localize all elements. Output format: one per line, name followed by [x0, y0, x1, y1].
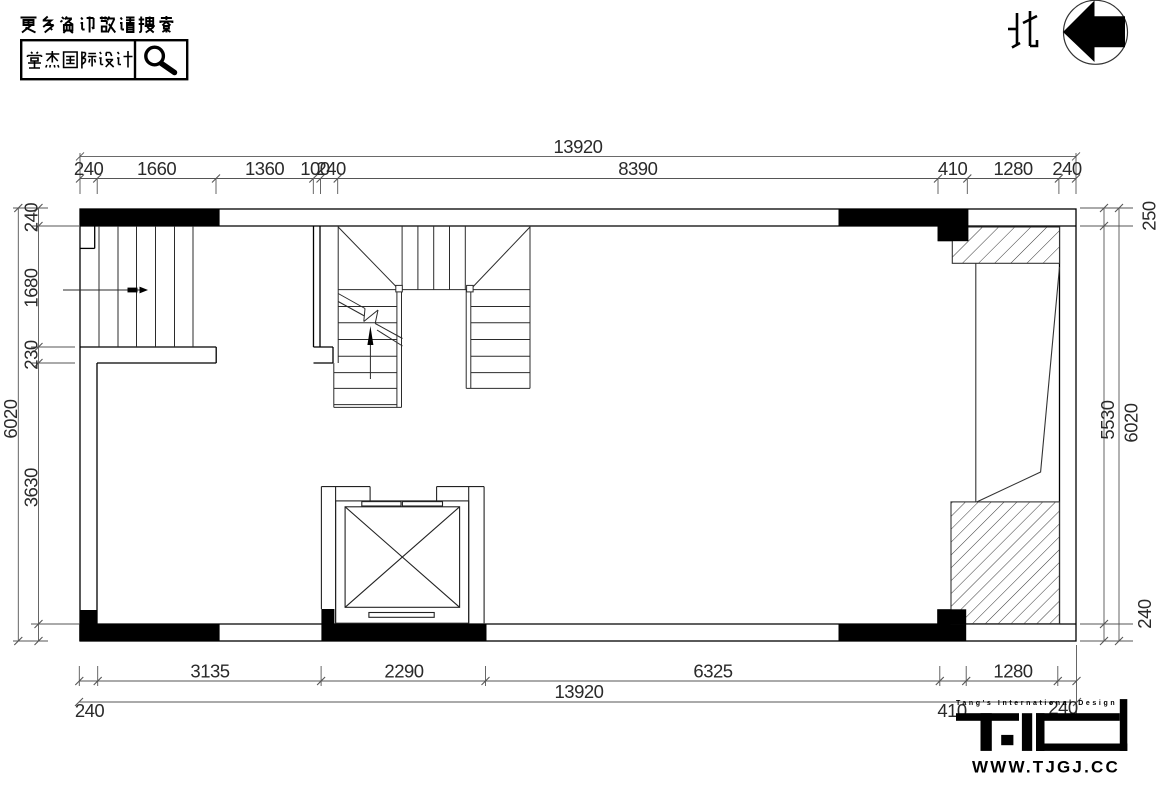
- svg-text:410: 410: [938, 158, 968, 179]
- svg-text:WWW.TJGJ.CC: WWW.TJGJ.CC: [972, 758, 1120, 777]
- svg-text:3630: 3630: [21, 468, 42, 507]
- svg-text:13920: 13920: [554, 136, 603, 157]
- svg-text:6325: 6325: [693, 661, 732, 682]
- svg-text:8390: 8390: [618, 158, 657, 179]
- svg-text:13920: 13920: [555, 681, 604, 702]
- svg-text:240: 240: [21, 203, 42, 233]
- svg-text:6020: 6020: [1121, 403, 1142, 442]
- svg-text:Tang's International Design: Tang's International Design: [956, 700, 1117, 707]
- svg-text:3135: 3135: [190, 661, 229, 682]
- svg-text:6020: 6020: [0, 399, 21, 438]
- svg-text:1360: 1360: [245, 158, 284, 179]
- svg-text:240: 240: [316, 158, 346, 179]
- svg-text:1680: 1680: [21, 268, 42, 307]
- svg-text:240: 240: [1134, 599, 1155, 629]
- svg-text:250: 250: [1139, 201, 1158, 231]
- svg-text:2290: 2290: [384, 661, 423, 682]
- svg-text:1280: 1280: [993, 661, 1032, 682]
- svg-text:1660: 1660: [137, 158, 176, 179]
- svg-text:240: 240: [75, 700, 105, 721]
- svg-text:5530: 5530: [1097, 400, 1118, 439]
- svg-text:1280: 1280: [994, 158, 1033, 179]
- svg-text:240: 240: [1052, 158, 1082, 179]
- svg-text:240: 240: [74, 158, 104, 179]
- svg-text:230: 230: [21, 340, 42, 370]
